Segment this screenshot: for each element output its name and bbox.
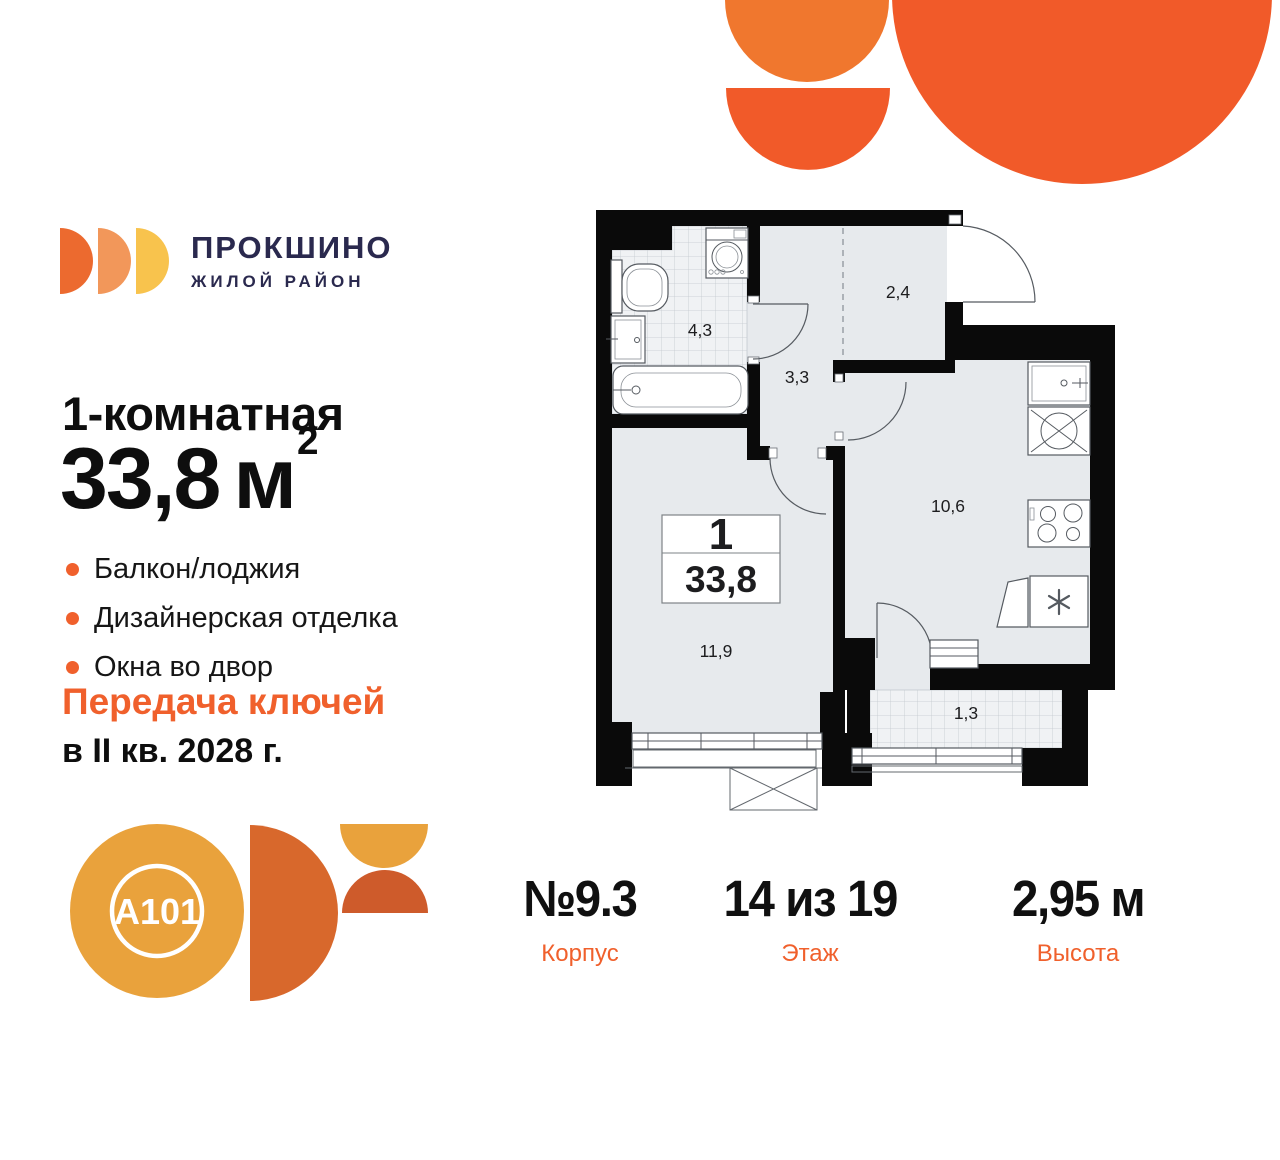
- stat-ceiling-height-value: 2,95 м: [1012, 869, 1144, 928]
- balcony-window: [852, 748, 1022, 772]
- developer-logo: A101: [60, 812, 440, 1012]
- apartment-area: 33,8м2: [60, 430, 319, 529]
- hob-unit: [1028, 407, 1090, 455]
- room-label-hall: 3,3: [785, 367, 809, 387]
- area-superscript: 2: [297, 420, 319, 463]
- toilet: [611, 260, 668, 313]
- stat-floor-label: Этаж: [690, 940, 930, 968]
- logo-semicircle-icon: [60, 228, 93, 294]
- floor-plan: 1 33,8 4,3 3,3 2,4 10,6 11,9 1,3: [565, 190, 1130, 860]
- deco-semicircle-light: [725, 0, 889, 82]
- stat-floor-value: 14 из 19: [723, 869, 896, 928]
- door-jamb: [835, 374, 843, 382]
- door-jamb: [818, 448, 826, 458]
- room-label-wardrobe: 2,4: [886, 282, 911, 302]
- kitchen-sink: [1028, 362, 1090, 405]
- bullet-icon: [66, 563, 79, 576]
- bullet-icon: [66, 661, 79, 674]
- a101-label: A101: [114, 891, 200, 932]
- deco-semicircle-dark: [726, 88, 890, 170]
- door-jamb: [748, 357, 759, 364]
- fridge: [997, 576, 1088, 627]
- a101-half-circle: [250, 825, 338, 1001]
- bathtub: [613, 366, 748, 414]
- room-label-living: 11,9: [700, 641, 733, 661]
- deco-circles-top-right: [700, 0, 1280, 190]
- list-item: Балкон/лоджия: [66, 553, 398, 586]
- stat-building-label: Корпус: [460, 940, 700, 968]
- living-room-window: [632, 733, 822, 749]
- handover-date: в II кв. 2028 г.: [62, 732, 385, 771]
- listing-flyer: ПРОКШИНО ЖИЛОЙ РАЙОН 1-комнатная 33,8м2 …: [0, 0, 1280, 1160]
- feature-list: Балкон/лоджия Дизайнерская отделка Окна …: [66, 553, 398, 684]
- door-jamb: [769, 448, 777, 458]
- handover-title: Передача ключей: [62, 681, 385, 723]
- room-label-kitchen: 10,6: [931, 496, 965, 516]
- door-jamb: [949, 215, 961, 224]
- list-item: Дизайнерская отделка: [66, 602, 398, 635]
- door-jamb: [835, 432, 843, 440]
- entry-door: [963, 226, 1035, 302]
- brand-logo: ПРОКШИНО ЖИЛОЙ РАЙОН: [60, 228, 393, 294]
- brand-tagline: ЖИЛОЙ РАЙОН: [191, 272, 393, 292]
- stat-floor: 14 из 19 Этаж: [690, 869, 930, 968]
- door-jamb: [748, 296, 759, 303]
- area-value: 33,8: [60, 431, 219, 527]
- deco-big-circle: [892, 0, 1272, 184]
- stat-ceiling-height: 2,95 м Высота: [958, 869, 1198, 968]
- room-label-balcony: 1,3: [954, 703, 978, 723]
- logo-semicircle-icon: [136, 228, 169, 294]
- a101-dome-gold: [340, 824, 428, 868]
- stove: [1028, 500, 1090, 547]
- bathroom-sink: [606, 316, 645, 363]
- stat-building-value: №9.3: [523, 869, 636, 928]
- brand-logo-marks-icon: [60, 228, 169, 294]
- stat-ceiling-height-label: Высота: [958, 940, 1198, 968]
- handover-block: Передача ключей в II кв. 2028 г.: [62, 681, 385, 771]
- washing-machine: [706, 228, 748, 278]
- unit-area-value: 33,8: [685, 559, 757, 600]
- logo-semicircle-icon: [98, 228, 131, 294]
- unit-info-box: 1 33,8: [662, 510, 780, 603]
- a101-dome-orange: [342, 870, 428, 913]
- feature-label: Балкон/лоджия: [94, 553, 300, 586]
- list-item: Окна во двор: [66, 651, 398, 684]
- unit-rooms-count: 1: [709, 510, 733, 559]
- stat-building: №9.3 Корпус: [460, 869, 700, 968]
- brand-logo-text: ПРОКШИНО ЖИЛОЙ РАЙОН: [191, 230, 393, 292]
- room-label-bathroom: 4,3: [688, 320, 712, 340]
- area-unit: м: [233, 431, 297, 527]
- feature-label: Окна во двор: [94, 651, 273, 684]
- bullet-icon: [66, 612, 79, 625]
- kitchen-balcony-window: [930, 640, 978, 668]
- feature-label: Дизайнерская отделка: [94, 602, 398, 635]
- brand-name: ПРОКШИНО: [191, 230, 393, 266]
- living-balcony-outline: [625, 750, 822, 810]
